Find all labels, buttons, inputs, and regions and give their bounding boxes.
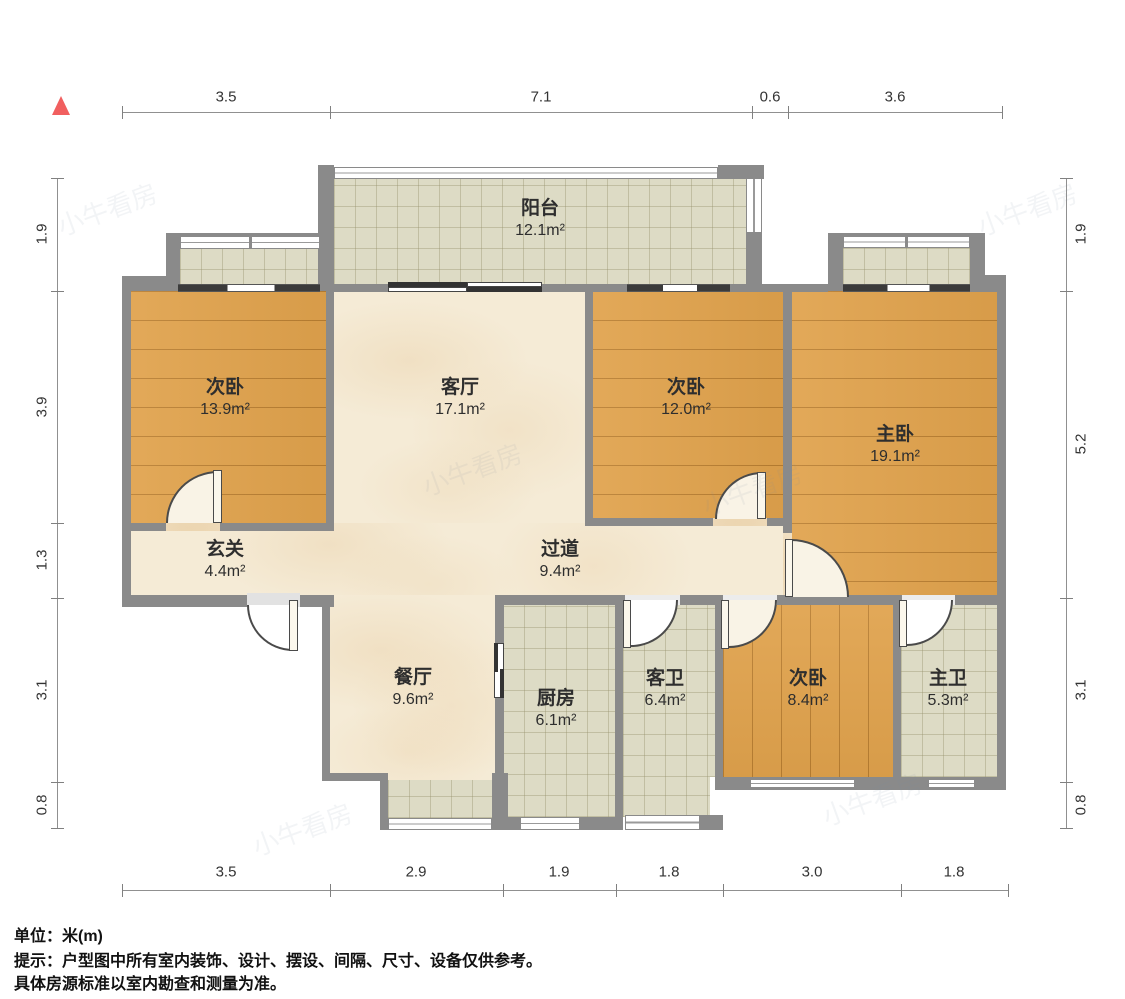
wall	[746, 233, 762, 291]
wall	[326, 284, 334, 531]
window	[928, 779, 975, 788]
dimension-label: 5.2	[1073, 434, 1090, 455]
interior-window	[843, 284, 970, 292]
dimension-label: 3.0	[802, 864, 823, 881]
window	[520, 817, 580, 830]
dimension-line-left	[57, 178, 58, 828]
wall	[585, 284, 593, 526]
wall	[955, 595, 1006, 605]
watermark: 小牛看房	[52, 173, 162, 243]
dimension-line-top	[122, 112, 1002, 113]
dimension-label: 1.9	[1073, 224, 1090, 245]
dimension-tick	[616, 884, 617, 897]
dimension-tick	[723, 884, 724, 897]
entry-door-leaf	[289, 600, 298, 651]
dimension-label: 3.6	[885, 89, 906, 106]
wall	[730, 284, 783, 292]
wall	[700, 815, 723, 830]
dimension-tick	[1008, 884, 1009, 897]
wall	[122, 595, 247, 607]
window-mullion	[905, 236, 908, 248]
wall	[767, 518, 783, 526]
door-leaf	[721, 600, 729, 649]
wall	[122, 276, 131, 607]
wall	[495, 595, 625, 605]
dimension-tick	[51, 828, 64, 829]
door-leaf	[899, 600, 907, 647]
wall	[122, 523, 166, 531]
sliding-door-panel	[500, 669, 504, 698]
dimension-label: 1.8	[944, 864, 965, 881]
doorway-gap	[166, 523, 220, 531]
room-label-master-bedroom: 主卧 19.1m²	[870, 423, 920, 467]
wall	[380, 773, 388, 830]
wall	[593, 284, 627, 292]
dimension-label: 3.9	[34, 397, 51, 418]
door-leaf	[757, 472, 766, 519]
dimension-label: 3.1	[1073, 680, 1090, 701]
dimension-tick	[330, 106, 331, 119]
dimension-tick	[51, 178, 64, 179]
dimension-label: 0.8	[1073, 795, 1090, 816]
dimension-tick	[1060, 828, 1073, 829]
doorway-gap	[713, 518, 767, 526]
dimension-label: 3.5	[216, 89, 237, 106]
room-label-balcony: 阳台 12.1m²	[515, 197, 565, 241]
wall	[792, 284, 828, 292]
window	[746, 178, 762, 233]
window	[750, 779, 855, 788]
wall	[495, 698, 504, 781]
room-label-kitchen: 厨房 6.1m²	[536, 687, 577, 731]
wall	[322, 773, 388, 781]
dimension-tick	[1060, 782, 1073, 783]
door-leaf	[213, 470, 222, 523]
wall	[220, 523, 334, 531]
dimension-tick	[503, 884, 504, 897]
dimension-tick	[1060, 178, 1073, 179]
sliding-door-panel	[494, 643, 498, 672]
dimension-tick	[51, 782, 64, 783]
dimension-label: 1.3	[34, 550, 51, 571]
balcony-railing-window	[334, 167, 718, 179]
unit-note: 单位：米(m)	[14, 922, 103, 946]
dimension-tick	[51, 598, 64, 599]
dimension-line-right	[1066, 178, 1067, 828]
dimension-tick	[752, 106, 753, 119]
disclaimer-line1: 提示：户型图中所有室内装饰、设计、摆设、间隔、尺寸、设备仅供参考。	[14, 947, 542, 971]
sliding-door-panel	[467, 287, 542, 292]
floorplan-canvas: 阳台 12.1m² 次卧 13.9m² 客厅 17.1m² 次卧 12.0m² …	[0, 0, 1125, 999]
wall	[322, 595, 330, 781]
dimension-label: 0.6	[760, 89, 781, 106]
dimension-tick	[901, 884, 902, 897]
room-label-bedroom-bottom: 次卧 8.4m²	[788, 667, 829, 711]
window	[625, 815, 700, 830]
wall	[495, 597, 504, 643]
wall	[997, 275, 1006, 790]
wall	[718, 165, 764, 179]
wall	[828, 233, 843, 291]
sliding-door-panel	[388, 287, 467, 292]
room-label-dining-room: 餐厅 9.6m²	[393, 666, 434, 710]
room-label-corridor: 过道 9.4m²	[540, 538, 581, 582]
entry-door-arc	[247, 605, 293, 651]
dimension-label: 7.1	[531, 89, 552, 106]
dimension-tick	[1002, 106, 1003, 119]
dimension-label: 3.5	[216, 864, 237, 881]
watermark: 小牛看房	[247, 793, 357, 863]
wall	[318, 165, 334, 291]
guest-bathroom-bay-floor	[623, 777, 710, 817]
door-leaf	[785, 539, 793, 597]
dimension-tick	[1060, 598, 1073, 599]
room-label-guest-bathroom: 客卫 6.4m²	[645, 667, 686, 711]
room-label-bedroom-middle: 次卧 12.0m²	[661, 376, 711, 420]
dimension-label: 1.9	[549, 864, 570, 881]
room-label-entryway: 玄关 4.4m²	[205, 538, 246, 582]
room-label-bedroom-left: 次卧 13.9m²	[200, 376, 250, 420]
disclaimer-line2: 具体房源标准以室内勘查和测量为准。	[14, 970, 286, 994]
window-mullion	[249, 236, 252, 249]
dimension-line-bottom	[122, 890, 1008, 891]
dimension-tick	[122, 884, 123, 897]
wall	[783, 284, 792, 533]
interior-window	[178, 284, 320, 292]
dimension-label: 3.1	[34, 680, 51, 701]
dimension-label: 0.8	[34, 795, 51, 816]
wall	[334, 284, 390, 292]
dimension-label: 1.9	[34, 224, 51, 245]
wall	[580, 817, 623, 830]
dining-bay-floor	[388, 780, 492, 818]
wall	[970, 284, 997, 292]
north-arrow-icon	[52, 96, 70, 115]
dimension-tick	[51, 291, 64, 292]
door-leaf	[623, 600, 631, 648]
wall	[495, 817, 520, 830]
wall	[585, 518, 713, 526]
room-label-living-room: 客厅 17.1m²	[435, 376, 485, 420]
dimension-tick	[788, 106, 789, 119]
dimension-tick	[330, 884, 331, 897]
wall	[615, 595, 623, 830]
dimension-tick	[51, 523, 64, 524]
room-label-master-bathroom: 主卫 5.3m²	[928, 667, 969, 711]
dimension-label: 2.9	[406, 864, 427, 881]
dimension-tick	[1060, 291, 1073, 292]
window	[388, 818, 492, 830]
interior-window	[627, 284, 730, 292]
dimension-label: 1.8	[659, 864, 680, 881]
dimension-tick	[122, 106, 123, 119]
